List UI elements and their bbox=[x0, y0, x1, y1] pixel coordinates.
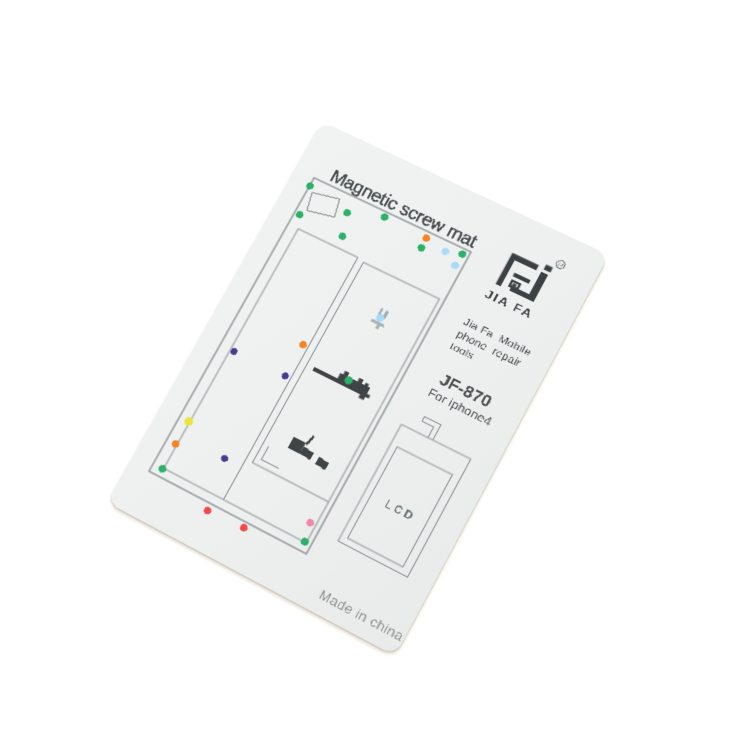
svg-text:R: R bbox=[556, 261, 564, 270]
svg-text:JIA FA: JIA FA bbox=[482, 287, 536, 322]
svg-text:Magnetic screw mat: Magnetic screw mat bbox=[327, 166, 481, 252]
svg-text:LCD: LCD bbox=[382, 498, 417, 524]
svg-text:Made in china: Made in china bbox=[316, 587, 406, 645]
